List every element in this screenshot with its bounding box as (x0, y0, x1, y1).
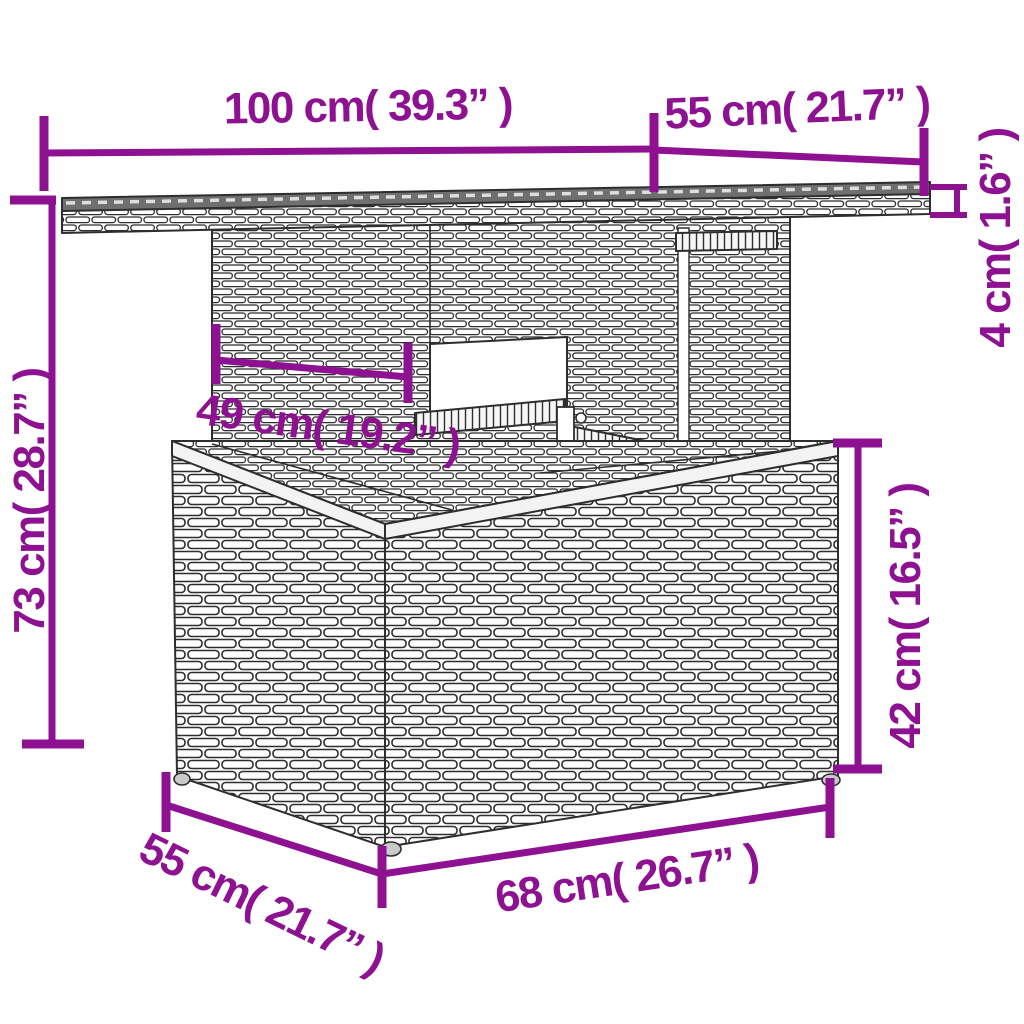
foot-left (174, 773, 190, 785)
screw-fitting (576, 413, 586, 423)
diagram-svg: 100 cm( 39.3” ) 55 cm( 21.7” ) 4 cm( 1.6… (0, 0, 1024, 1024)
dimension-tabletop-width: 100 cm( 39.3” ) (44, 79, 654, 192)
dim-label-total-height: 73 cm( 28.7” ) (5, 368, 54, 633)
dim-line (44, 149, 654, 153)
table-drawing (62, 182, 930, 856)
dim-label-base-width: 68 cm( 26.7” ) (492, 835, 761, 923)
dim-label-tabletop-thickness: 4 cm( 1.6” ) (971, 128, 1020, 347)
dimension-base-height: 42 cm( 16.5” ) (833, 443, 930, 769)
dim-line (654, 150, 924, 162)
wicker-roll-top (676, 231, 777, 251)
dim-label-base-depth: 55 cm( 21.7” ) (132, 823, 392, 983)
dimension-total-height: 73 cm( 28.7” ) (5, 200, 84, 744)
dim-label-tabletop-width: 100 cm( 39.3” ) (223, 79, 512, 133)
dimension-tabletop-depth: 55 cm( 21.7” ) (654, 78, 930, 196)
product-dimension-image: 100 cm( 39.3” ) 55 cm( 21.7” ) 4 cm( 1.6… (0, 0, 1024, 1024)
dim-label-tabletop-depth: 55 cm( 21.7” ) (663, 78, 930, 139)
pedestal-gap (678, 228, 689, 455)
dimension-tabletop-thickness: 4 cm( 1.6” ) (930, 128, 1020, 347)
dim-label-base-height: 42 cm( 16.5” ) (881, 483, 930, 748)
